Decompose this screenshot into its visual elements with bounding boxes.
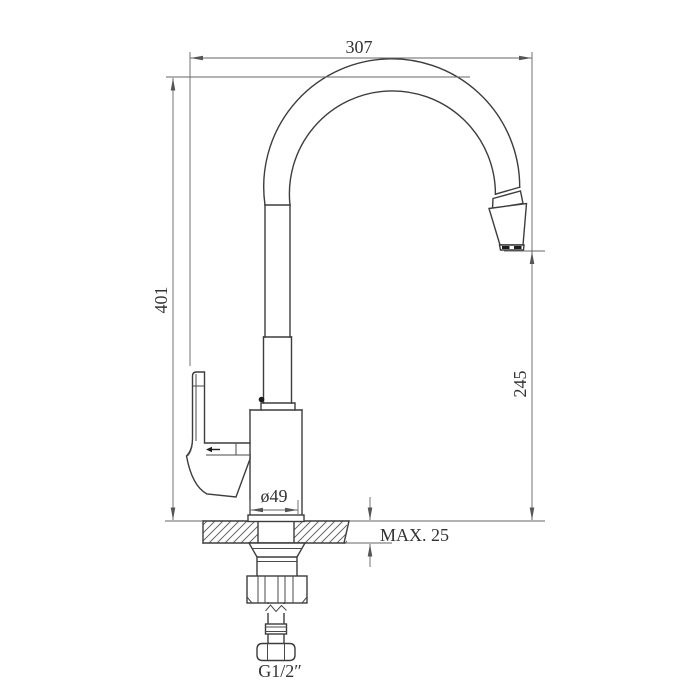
- lock-nut: [247, 576, 307, 603]
- label-max-deck-thickness: MAX. 25: [380, 525, 449, 545]
- collar-pin: [259, 397, 265, 403]
- faucet-body: [248, 59, 527, 522]
- mount-adapter: [249, 543, 305, 557]
- mount-neck: [257, 557, 297, 576]
- label-base-diameter: ø49: [261, 486, 288, 506]
- counter-hatch-left: [203, 521, 258, 543]
- riser-collar-ring: [261, 403, 295, 410]
- aerator-slot: [514, 246, 522, 249]
- faucet-shank: [258, 521, 294, 543]
- spray-head: [489, 204, 527, 246]
- mounting-hardware: [247, 543, 307, 661]
- label-outlet-height: 245: [510, 371, 530, 398]
- counter-hatch-right: [294, 521, 347, 543]
- gooseneck-inner-arc: [289, 91, 495, 205]
- faucet-technical-drawing: 307 401 245 ø49 MAX. 25 G1/2″: [0, 0, 700, 700]
- lever-handle: [187, 372, 251, 497]
- countertop-section: [203, 521, 349, 543]
- hex-connector-nut: [257, 644, 295, 661]
- label-spout-reach: 307: [346, 37, 373, 57]
- label-inlet-thread: G1/2″: [258, 661, 302, 681]
- drawing-svg: 307 401 245 ø49 MAX. 25 G1/2″: [0, 0, 700, 700]
- riser-column: [265, 205, 290, 337]
- pipe-coupling: [266, 624, 287, 634]
- aerator-slot: [502, 246, 510, 249]
- gooseneck-outer-arc: [264, 59, 520, 205]
- riser-lower-tube: [264, 337, 292, 403]
- label-overall-height: 401: [151, 287, 171, 314]
- base-flange: [248, 515, 304, 522]
- dimension-labels: 307 401 245 ø49 MAX. 25 G1/2″: [151, 37, 530, 681]
